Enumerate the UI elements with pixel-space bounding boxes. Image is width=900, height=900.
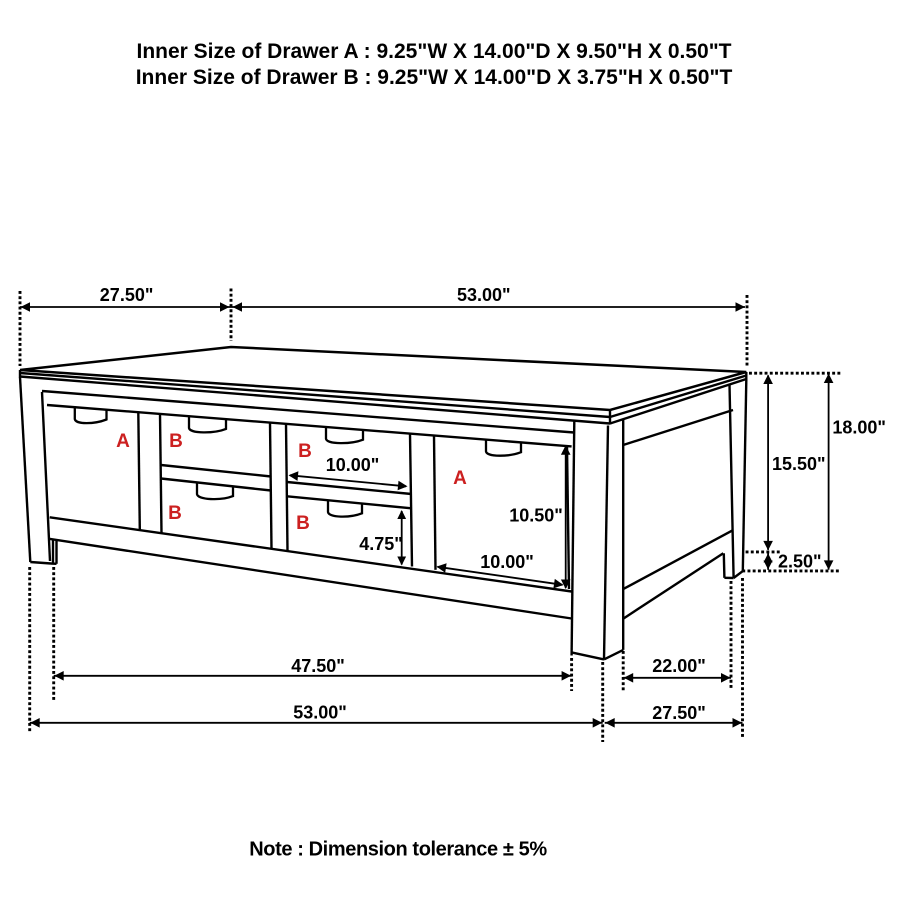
svg-text:15.50": 15.50" [772,454,826,474]
svg-text:47.50": 47.50" [291,656,345,676]
svg-text:27.50": 27.50" [652,703,706,723]
svg-text:Note : Dimension tolerance ± 5: Note : Dimension tolerance ± 5% [249,839,547,861]
svg-text:10.00": 10.00" [326,455,380,475]
svg-text:A: A [116,431,130,452]
svg-text:53.00": 53.00" [293,703,347,723]
svg-text:B: B [296,513,310,534]
svg-text:22.00": 22.00" [652,656,706,676]
svg-text:Inner Size of Drawer B : 9.25": Inner Size of Drawer B : 9.25"W X 14.00"… [136,66,733,89]
svg-text:18.00": 18.00" [832,418,886,438]
svg-text:10.50": 10.50" [509,506,563,526]
svg-text:B: B [169,431,183,452]
svg-text:27.50": 27.50" [100,285,154,305]
svg-text:A: A [453,468,467,489]
svg-text:53.00": 53.00" [457,285,511,305]
svg-text:4.75": 4.75" [359,534,403,554]
svg-text:B: B [298,441,312,462]
svg-text:10.00": 10.00" [480,552,534,572]
svg-text:2.50": 2.50" [778,552,822,572]
svg-text:Inner Size of Drawer A : 9.25": Inner Size of Drawer A : 9.25"W X 14.00"… [137,40,732,63]
svg-text:B: B [168,503,182,524]
